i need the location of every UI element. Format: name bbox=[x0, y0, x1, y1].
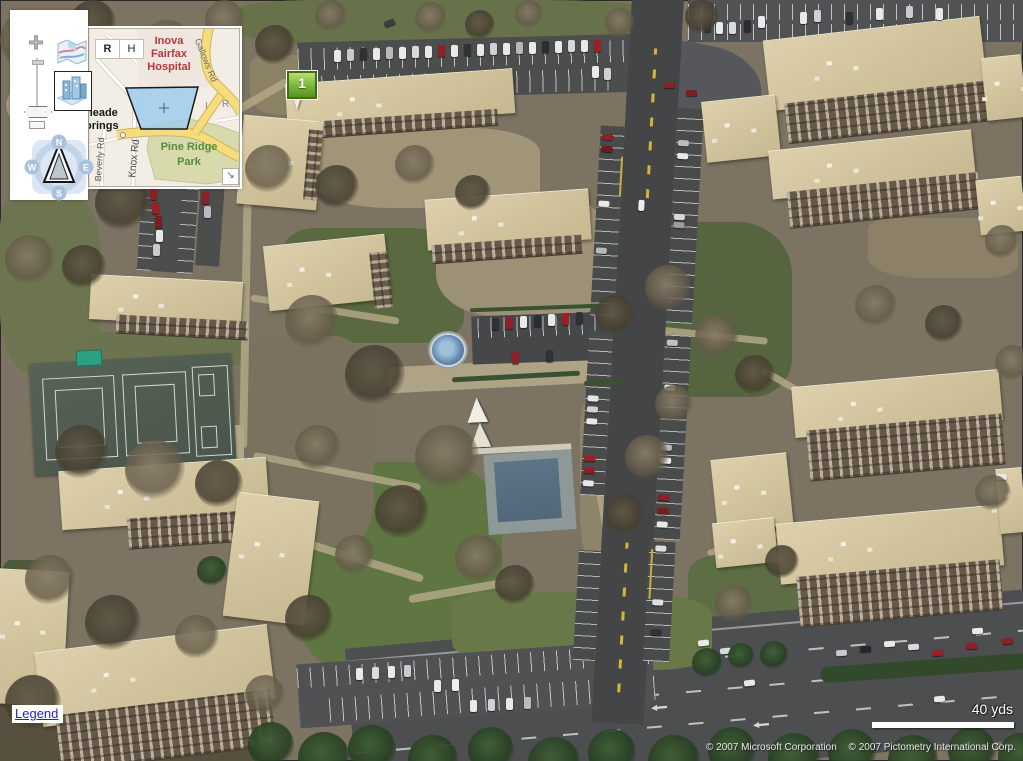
car bbox=[592, 66, 599, 78]
car bbox=[814, 10, 821, 22]
tree bbox=[625, 435, 669, 479]
car bbox=[586, 418, 597, 425]
tree bbox=[685, 0, 719, 34]
tree bbox=[375, 485, 429, 539]
car bbox=[548, 314, 555, 326]
tree bbox=[55, 425, 109, 479]
tent-peak bbox=[467, 398, 488, 423]
car bbox=[587, 406, 598, 413]
car bbox=[434, 680, 441, 692]
road-map-icon bbox=[56, 37, 88, 67]
tree bbox=[175, 615, 219, 659]
car bbox=[932, 650, 943, 657]
road-style-button[interactable] bbox=[56, 37, 88, 67]
car bbox=[876, 8, 883, 20]
tree bbox=[415, 2, 447, 34]
place-label-line2: orings bbox=[88, 120, 119, 132]
tree bbox=[495, 565, 535, 605]
tree bbox=[455, 175, 491, 211]
evergreen-tree bbox=[298, 732, 350, 761]
fountain bbox=[432, 335, 464, 365]
building-roof bbox=[981, 54, 1023, 121]
inset-road-button[interactable]: R bbox=[95, 39, 120, 59]
car bbox=[583, 480, 594, 487]
car bbox=[906, 6, 913, 18]
map-pushpin-1[interactable]: 1 bbox=[287, 71, 317, 99]
compass-north-label: N bbox=[56, 138, 63, 148]
navigation-panel: + bbox=[10, 10, 88, 200]
tree bbox=[245, 145, 293, 193]
tree bbox=[595, 295, 635, 335]
car bbox=[150, 188, 157, 200]
compass-east-label: E bbox=[83, 163, 89, 173]
car bbox=[936, 8, 943, 20]
zoom-in-button[interactable]: + bbox=[24, 30, 48, 54]
road-arrow bbox=[753, 720, 770, 729]
clubhouse-tent bbox=[467, 393, 574, 454]
car bbox=[800, 12, 807, 24]
car bbox=[412, 46, 419, 58]
car bbox=[650, 629, 661, 636]
car bbox=[334, 50, 341, 62]
car bbox=[356, 668, 363, 680]
car bbox=[673, 222, 684, 229]
tree bbox=[62, 245, 106, 289]
partial-road-label-i: I bbox=[205, 101, 208, 112]
car bbox=[546, 350, 553, 362]
tree bbox=[855, 285, 897, 327]
tree bbox=[245, 675, 285, 715]
court-lines bbox=[135, 384, 178, 444]
tree bbox=[255, 25, 295, 65]
car bbox=[934, 696, 945, 703]
zoom-slider-thumb[interactable] bbox=[24, 106, 52, 118]
tree bbox=[345, 345, 405, 405]
inset-resize-button[interactable]: ↘ bbox=[222, 168, 239, 185]
overview-map[interactable]: Inova Fairfax Hospital Gallows Rd neade … bbox=[88, 28, 240, 187]
car bbox=[555, 41, 562, 53]
tree bbox=[295, 425, 341, 471]
tree bbox=[465, 10, 495, 40]
inset-hybrid-button[interactable]: H bbox=[119, 39, 144, 59]
car bbox=[1002, 638, 1013, 645]
hospital-label-line3: Hospital bbox=[147, 61, 190, 73]
car bbox=[686, 90, 697, 96]
car bbox=[594, 40, 601, 52]
tree bbox=[315, 0, 347, 32]
tree bbox=[975, 475, 1011, 511]
car bbox=[524, 697, 531, 709]
zoom-out-button[interactable] bbox=[29, 121, 45, 129]
car bbox=[587, 395, 598, 402]
car bbox=[388, 666, 395, 678]
car bbox=[503, 43, 510, 55]
scale-bar bbox=[872, 722, 1014, 728]
car bbox=[667, 340, 678, 347]
evergreen-tree bbox=[692, 648, 722, 678]
car bbox=[470, 700, 477, 712]
pool bbox=[494, 458, 562, 522]
parking-lot bbox=[195, 181, 225, 266]
scale-label: 40 yds bbox=[972, 701, 1013, 717]
tree bbox=[195, 460, 243, 508]
car bbox=[966, 643, 977, 650]
car bbox=[677, 153, 688, 160]
car bbox=[601, 146, 612, 153]
car bbox=[204, 206, 211, 218]
zoom-slider-track[interactable] bbox=[36, 58, 38, 108]
tree bbox=[415, 425, 479, 489]
tree bbox=[605, 8, 635, 38]
car bbox=[372, 667, 379, 679]
car bbox=[490, 43, 497, 55]
car bbox=[438, 45, 445, 57]
car bbox=[347, 49, 354, 61]
park-label-line1: Pine Ridge bbox=[149, 141, 229, 153]
car bbox=[638, 200, 645, 211]
car bbox=[562, 313, 569, 325]
car bbox=[658, 494, 669, 501]
car bbox=[744, 679, 756, 686]
hospital-label-line2: Fairfax bbox=[151, 48, 187, 60]
tree bbox=[85, 595, 141, 651]
evergreen-tree bbox=[760, 641, 788, 669]
court-lines bbox=[201, 426, 218, 449]
tree bbox=[985, 225, 1019, 259]
car bbox=[202, 192, 209, 204]
tree bbox=[765, 545, 799, 579]
copyright-pictometry: © 2007 Pictometry International Corp. bbox=[849, 742, 1016, 753]
tree bbox=[395, 145, 435, 185]
evergreen-tree bbox=[728, 643, 754, 669]
copyright-notice: © 2007 Microsoft Corporation © 2007 Pict… bbox=[706, 742, 1016, 753]
car bbox=[506, 698, 513, 710]
car bbox=[360, 48, 367, 60]
aerial-style-button-selected[interactable] bbox=[54, 71, 92, 111]
map-viewport[interactable]: 1 + bbox=[0, 0, 1023, 761]
tree bbox=[695, 315, 739, 359]
zoom-slider-tick bbox=[32, 60, 44, 65]
partial-road-label-r: R bbox=[222, 99, 229, 110]
car bbox=[386, 47, 393, 59]
car bbox=[596, 247, 607, 254]
car bbox=[678, 140, 689, 147]
park-label-line2: Park bbox=[149, 156, 229, 168]
car bbox=[884, 641, 895, 648]
car bbox=[399, 47, 406, 59]
car bbox=[452, 679, 459, 691]
tree bbox=[605, 495, 645, 535]
tree bbox=[645, 265, 691, 311]
car bbox=[477, 44, 484, 56]
car bbox=[152, 202, 159, 214]
tree bbox=[25, 555, 75, 605]
car bbox=[664, 82, 675, 88]
car bbox=[516, 42, 523, 54]
car bbox=[583, 467, 594, 474]
car bbox=[529, 42, 536, 54]
car bbox=[908, 644, 919, 651]
car bbox=[846, 12, 853, 24]
car bbox=[451, 45, 458, 57]
place-marker-dot bbox=[121, 133, 126, 138]
car bbox=[604, 68, 611, 80]
car bbox=[568, 40, 575, 52]
court-shed bbox=[76, 349, 103, 366]
car bbox=[425, 46, 432, 58]
tree bbox=[335, 535, 375, 575]
tree bbox=[925, 305, 963, 343]
car bbox=[656, 521, 667, 528]
tree bbox=[515, 0, 543, 28]
car bbox=[655, 545, 666, 552]
car bbox=[153, 244, 160, 256]
car bbox=[602, 134, 613, 141]
car bbox=[674, 214, 685, 221]
car bbox=[698, 639, 710, 646]
hospital-label-line1: Inova bbox=[155, 35, 184, 47]
legend-link[interactable]: Legend bbox=[12, 705, 63, 723]
car bbox=[657, 507, 668, 514]
car bbox=[744, 20, 751, 32]
car bbox=[860, 646, 871, 653]
car bbox=[836, 650, 847, 657]
car bbox=[506, 317, 513, 329]
car bbox=[729, 22, 736, 34]
tree bbox=[285, 595, 333, 643]
car bbox=[155, 216, 162, 228]
evergreen-tree bbox=[197, 556, 227, 586]
compass-south-label: S bbox=[56, 189, 62, 199]
compass-west-label: W bbox=[28, 163, 37, 173]
car bbox=[156, 230, 163, 242]
car bbox=[492, 318, 499, 330]
court-lines bbox=[198, 374, 215, 397]
place-label-line1: neade bbox=[88, 107, 118, 119]
tree bbox=[735, 355, 775, 395]
copyright-microsoft: © 2007 Microsoft Corporation bbox=[706, 742, 837, 753]
car bbox=[488, 699, 495, 711]
car bbox=[542, 41, 549, 53]
tree bbox=[315, 165, 359, 209]
car bbox=[576, 312, 583, 324]
car bbox=[404, 665, 411, 677]
aerial-3d-buildings-icon bbox=[55, 72, 89, 108]
car bbox=[652, 599, 663, 606]
car bbox=[584, 455, 595, 462]
tree bbox=[125, 440, 185, 500]
car bbox=[520, 316, 527, 328]
car bbox=[464, 44, 471, 56]
car bbox=[534, 315, 541, 327]
tree bbox=[995, 345, 1023, 381]
car bbox=[758, 16, 765, 28]
tree bbox=[5, 235, 55, 285]
car bbox=[512, 352, 519, 364]
compass-control: N W E S bbox=[22, 134, 96, 204]
car bbox=[581, 40, 588, 52]
tree bbox=[285, 295, 339, 349]
tree bbox=[655, 385, 693, 423]
car bbox=[972, 628, 983, 635]
evergreen-tree bbox=[248, 722, 294, 761]
car bbox=[598, 201, 609, 208]
tree bbox=[715, 585, 753, 623]
pool-deck bbox=[483, 449, 576, 535]
car bbox=[373, 48, 380, 60]
